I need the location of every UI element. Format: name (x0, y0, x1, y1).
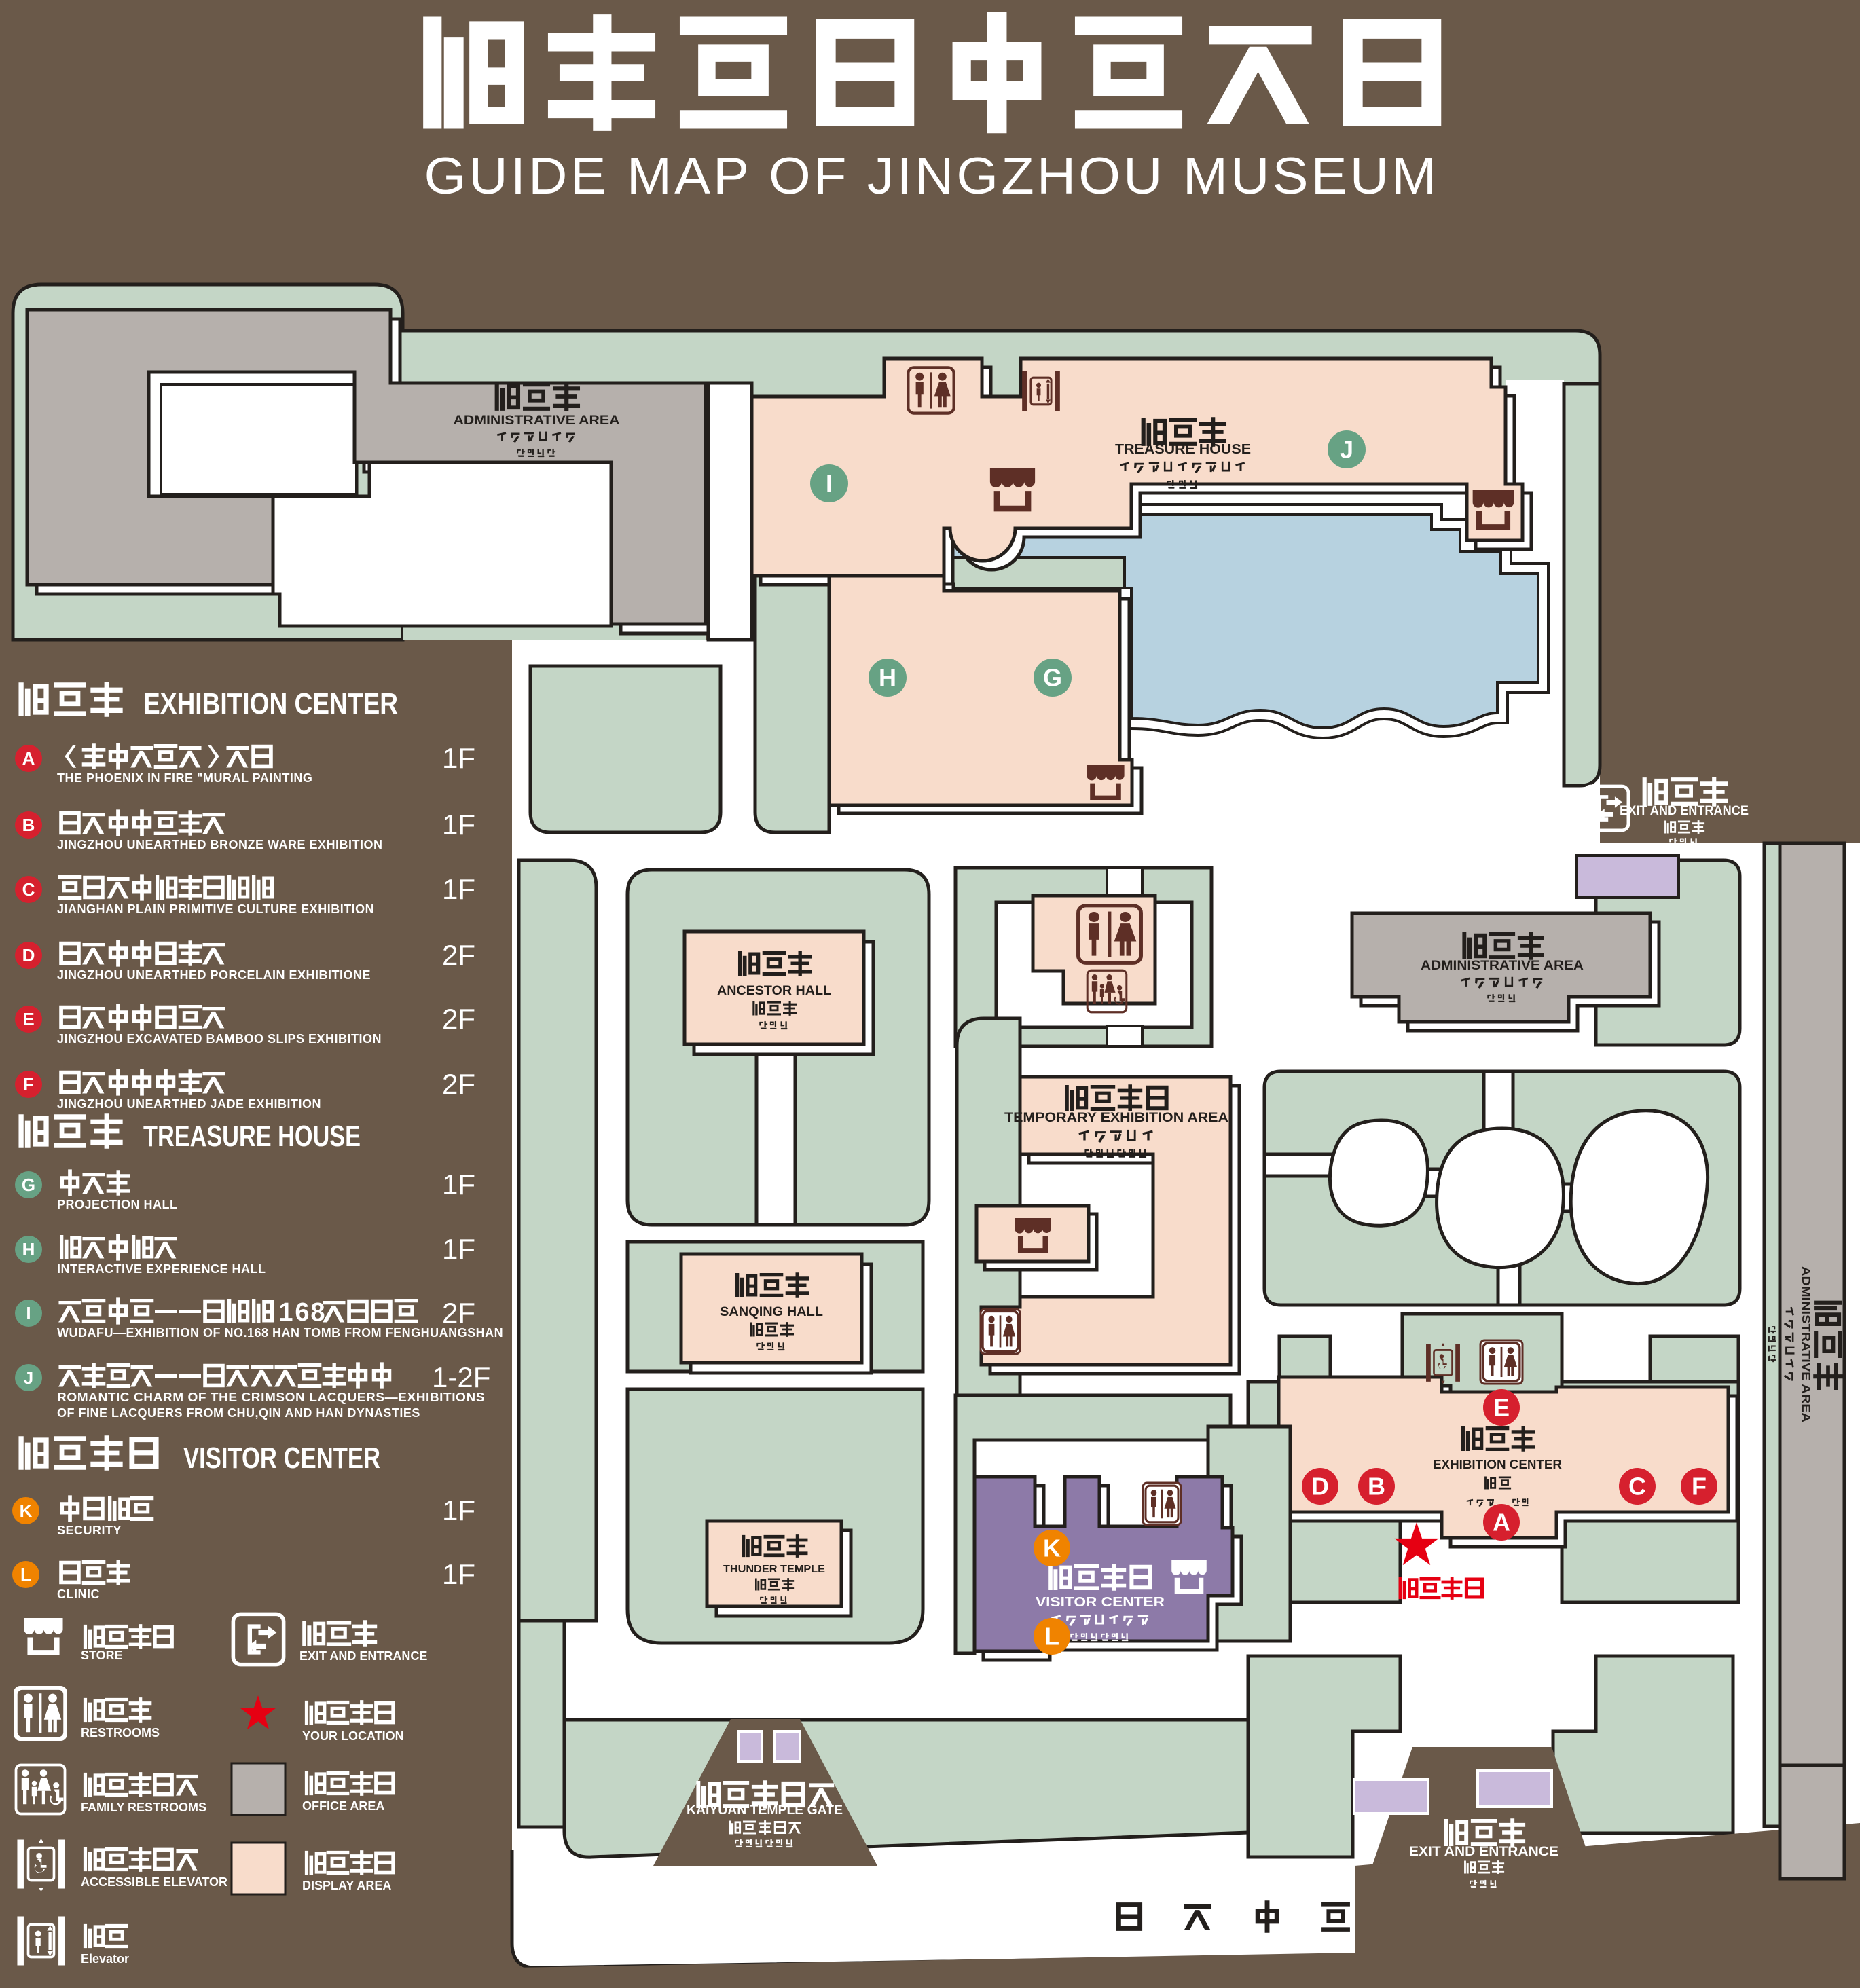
svg-text:6: 6 (295, 1298, 309, 1327)
svg-text:TEMPORARY EXHIBITION AREA: TEMPORARY EXHIBITION AREA (1004, 1111, 1228, 1125)
svg-text:1-2F: 1-2F (432, 1361, 490, 1393)
svg-text:1F: 1F (442, 873, 475, 905)
svg-text:F: F (23, 1074, 34, 1094)
svg-text:EXHIBITION CENTER: EXHIBITION CENTER (143, 687, 398, 720)
svg-text:TREASURE HOUSE: TREASURE HOUSE (1115, 442, 1251, 457)
svg-text:G: G (22, 1175, 35, 1195)
svg-text:THE PHOENIX IN FIRE "MURAL PAI: THE PHOENIX IN FIRE "MURAL PAINTING (57, 771, 312, 785)
svg-text:PROJECTION HALL: PROJECTION HALL (57, 1198, 178, 1211)
svg-text:EXIT AND ENTRANCE: EXIT AND ENTRANCE (1409, 1845, 1558, 1859)
svg-text:TREASURE HOUSE: TREASURE HOUSE (143, 1120, 361, 1153)
svg-text:F: F (1692, 1473, 1707, 1501)
svg-text:SANQING HALL: SANQING HALL (720, 1305, 823, 1319)
svg-text:1F: 1F (442, 1233, 475, 1265)
svg-text:C: C (1628, 1473, 1646, 1501)
svg-text:SECURITY: SECURITY (57, 1524, 122, 1537)
svg-text:ANCESTOR HALL: ANCESTOR HALL (717, 984, 831, 998)
svg-text:G: G (1043, 664, 1062, 692)
svg-text:VISITOR CENTER: VISITOR CENTER (1036, 1595, 1165, 1610)
svg-text:2F: 2F (442, 1297, 475, 1329)
svg-text:ADMINISTRATIVE AREA: ADMINISTRATIVE AREA (1800, 1266, 1812, 1422)
svg-text:STORE: STORE (81, 1649, 123, 1662)
svg-text:OFFICE AREA: OFFICE AREA (302, 1799, 384, 1813)
svg-text:ACCESSIBLE ELEVATOR: ACCESSIBLE ELEVATOR (81, 1875, 227, 1889)
svg-text:RESTROOMS: RESTROOMS (81, 1726, 160, 1739)
svg-text:I: I (826, 470, 833, 498)
svg-text:JIANGHAN PLAIN PRIMITIVE CULTU: JIANGHAN PLAIN PRIMITIVE CULTURE EXHIBIT… (57, 902, 374, 916)
svg-text:KAIYUAN TEMPLE GATE: KAIYUAN TEMPLE GATE (687, 1803, 843, 1818)
svg-text:2F: 2F (442, 939, 475, 971)
svg-text:EXIT AND ENTRANCE: EXIT AND ENTRANCE (1620, 804, 1749, 818)
svg-text:K: K (20, 1501, 33, 1521)
svg-text:JINGZHOU UNEARTHED PORCELAIN E: JINGZHOU UNEARTHED PORCELAIN EXHIBITIONE (57, 968, 371, 982)
svg-text:L: L (1044, 1623, 1059, 1651)
svg-text:1: 1 (278, 1298, 293, 1327)
svg-text:VISITOR CENTER: VISITOR CENTER (183, 1441, 380, 1475)
svg-text:JINGZHOU UNEARTHED JADE EXHIBI: JINGZHOU UNEARTHED JADE EXHIBITION (57, 1097, 321, 1111)
svg-text:WUDAFU—EXHIBITION OF NO.168 HA: WUDAFU—EXHIBITION OF NO.168 HAN TOMB FRO… (57, 1326, 503, 1340)
svg-text:1F: 1F (442, 1494, 475, 1526)
svg-text:JINGZHOU UNEARTHED BRONZE WARE: JINGZHOU UNEARTHED BRONZE WARE EXHIBITIO… (57, 838, 383, 851)
svg-text:DISPLAY AREA: DISPLAY AREA (302, 1879, 391, 1892)
svg-text:1F: 1F (442, 742, 475, 774)
svg-text:H: H (879, 664, 896, 692)
svg-text:EXIT AND ENTRANCE: EXIT AND ENTRANCE (299, 1649, 427, 1663)
svg-text:B: B (22, 815, 35, 835)
svg-text:A: A (22, 748, 35, 769)
svg-text:FAMILY RESTROOMS: FAMILY RESTROOMS (81, 1801, 206, 1814)
svg-text:CLINIC: CLINIC (57, 1587, 100, 1601)
svg-text:D: D (22, 945, 35, 965)
svg-text:INTERACTIVE EXPERIENCE HALL: INTERACTIVE EXPERIENCE HALL (57, 1262, 266, 1276)
svg-text:L: L (20, 1564, 31, 1585)
svg-text:Elevator: Elevator (81, 1952, 129, 1966)
svg-text:2F: 2F (442, 1068, 475, 1100)
svg-text:J: J (1340, 436, 1353, 464)
svg-text:ROMANTIC CHARM OF THE CRIMSON: ROMANTIC CHARM OF THE CRIMSON LACQUERS—E… (57, 1391, 485, 1404)
svg-text:OF FINE LACQUERS FROM CHU,QIN: OF FINE LACQUERS FROM CHU,QIN AND HAN DY… (57, 1406, 420, 1420)
svg-text:1F: 1F (442, 1558, 475, 1590)
svg-text:ADMINISTRATIVE AREA: ADMINISTRATIVE AREA (454, 413, 620, 428)
svg-text:1F: 1F (442, 809, 475, 841)
svg-text:8: 8 (310, 1298, 325, 1327)
svg-text:B: B (1368, 1473, 1385, 1501)
svg-text:C: C (22, 879, 35, 900)
svg-text:J: J (24, 1367, 33, 1388)
svg-text:D: D (1311, 1473, 1329, 1501)
svg-text:JINGZHOU EXCAVATED BAMBOO SLIP: JINGZHOU EXCAVATED BAMBOO SLIPS EXHIBITI… (57, 1032, 382, 1046)
svg-text:A: A (1493, 1509, 1510, 1536)
svg-text:EXHIBITION CENTER: EXHIBITION CENTER (1433, 1458, 1562, 1471)
svg-text:1F: 1F (442, 1168, 475, 1200)
svg-text:H: H (22, 1239, 35, 1259)
svg-text:I: I (26, 1303, 31, 1323)
svg-text:E: E (22, 1009, 34, 1029)
svg-text:2F: 2F (442, 1003, 475, 1035)
svg-text:E: E (1493, 1394, 1510, 1422)
svg-text:K: K (1043, 1534, 1061, 1562)
svg-text:YOUR LOCATION: YOUR LOCATION (302, 1729, 404, 1743)
svg-text:ADMINISTRATIVE AREA: ADMINISTRATIVE AREA (1421, 959, 1584, 973)
svg-text:GUIDE MAP OF JINGZHOU MUSEUM: GUIDE MAP OF JINGZHOU MUSEUM (424, 147, 1440, 205)
svg-text:THUNDER TEMPLE: THUNDER TEMPLE (723, 1564, 825, 1575)
